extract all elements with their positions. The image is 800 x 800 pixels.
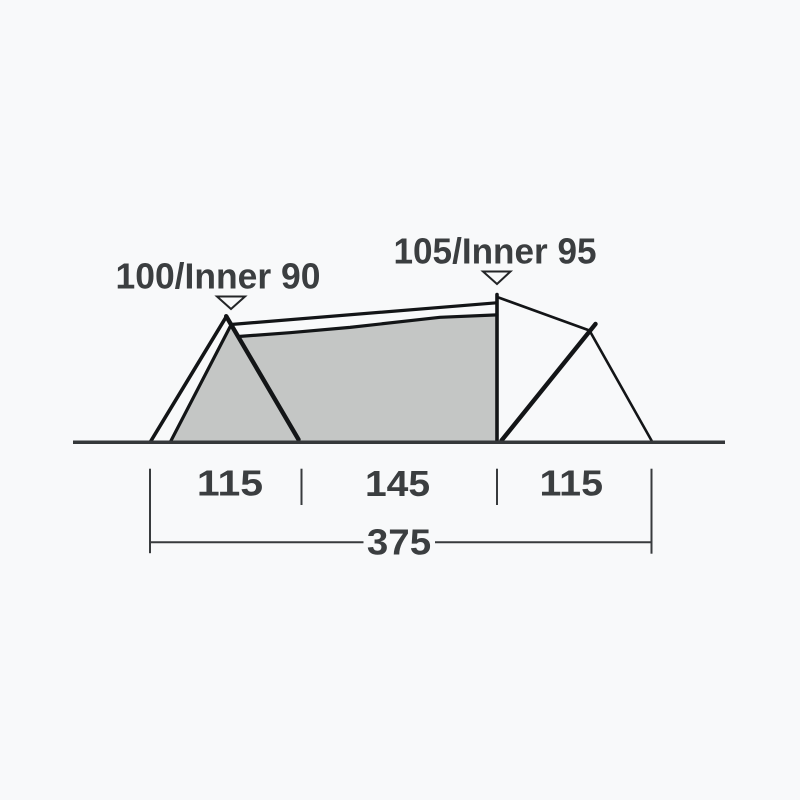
svg-text:145: 145: [365, 463, 430, 503]
svg-text:115: 115: [197, 464, 263, 504]
svg-text:115: 115: [539, 464, 603, 504]
svg-text:375: 375: [367, 522, 431, 563]
svg-text:100/Inner 90: 100/Inner 90: [116, 256, 321, 297]
svg-text:105/Inner 95: 105/Inner 95: [394, 231, 597, 272]
